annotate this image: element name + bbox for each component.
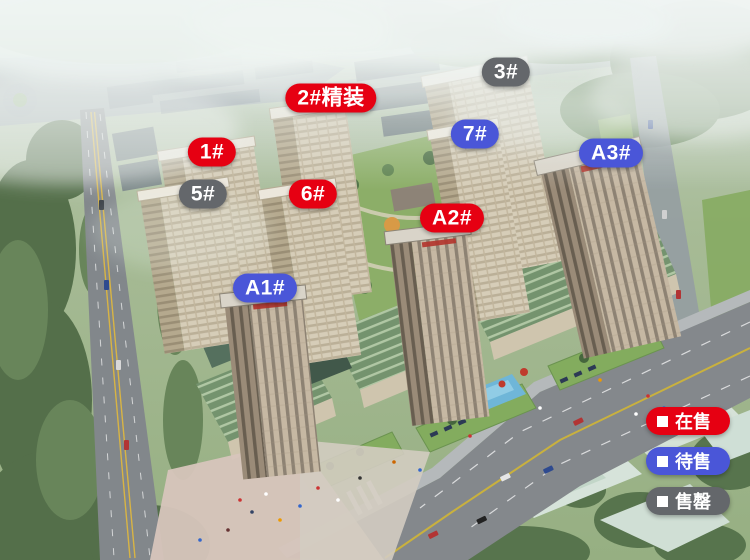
legend-label: 售罄: [675, 488, 711, 514]
legend-item-on_sale: 在售: [646, 407, 730, 435]
building-marker-A3#[interactable]: A3#: [579, 139, 643, 168]
legend: 在售待售售罄: [646, 407, 730, 515]
building-marker-6#[interactable]: 6#: [289, 180, 337, 209]
building-marker-2#精装[interactable]: 2#精装: [285, 84, 376, 113]
building-marker-5#[interactable]: 5#: [179, 180, 227, 209]
legend-bullet-icon: [657, 416, 668, 427]
building-marker-A2#[interactable]: A2#: [420, 204, 484, 233]
legend-label: 待售: [675, 448, 711, 474]
aerial-rendering: [0, 0, 750, 560]
sales-map: 1#5#2#精装6#3#7#A2#A1#A3# 在售待售售罄: [0, 0, 750, 560]
legend-bullet-icon: [657, 496, 668, 507]
legend-bullet-icon: [657, 456, 668, 467]
legend-label: 在售: [675, 408, 711, 434]
legend-item-sold_out: 售罄: [646, 487, 730, 515]
building-marker-3#[interactable]: 3#: [482, 58, 530, 87]
legend-item-pending: 待售: [646, 447, 730, 475]
building-marker-1#[interactable]: 1#: [188, 138, 236, 167]
building-marker-7#[interactable]: 7#: [451, 120, 499, 149]
building-marker-A1#[interactable]: A1#: [233, 274, 297, 303]
